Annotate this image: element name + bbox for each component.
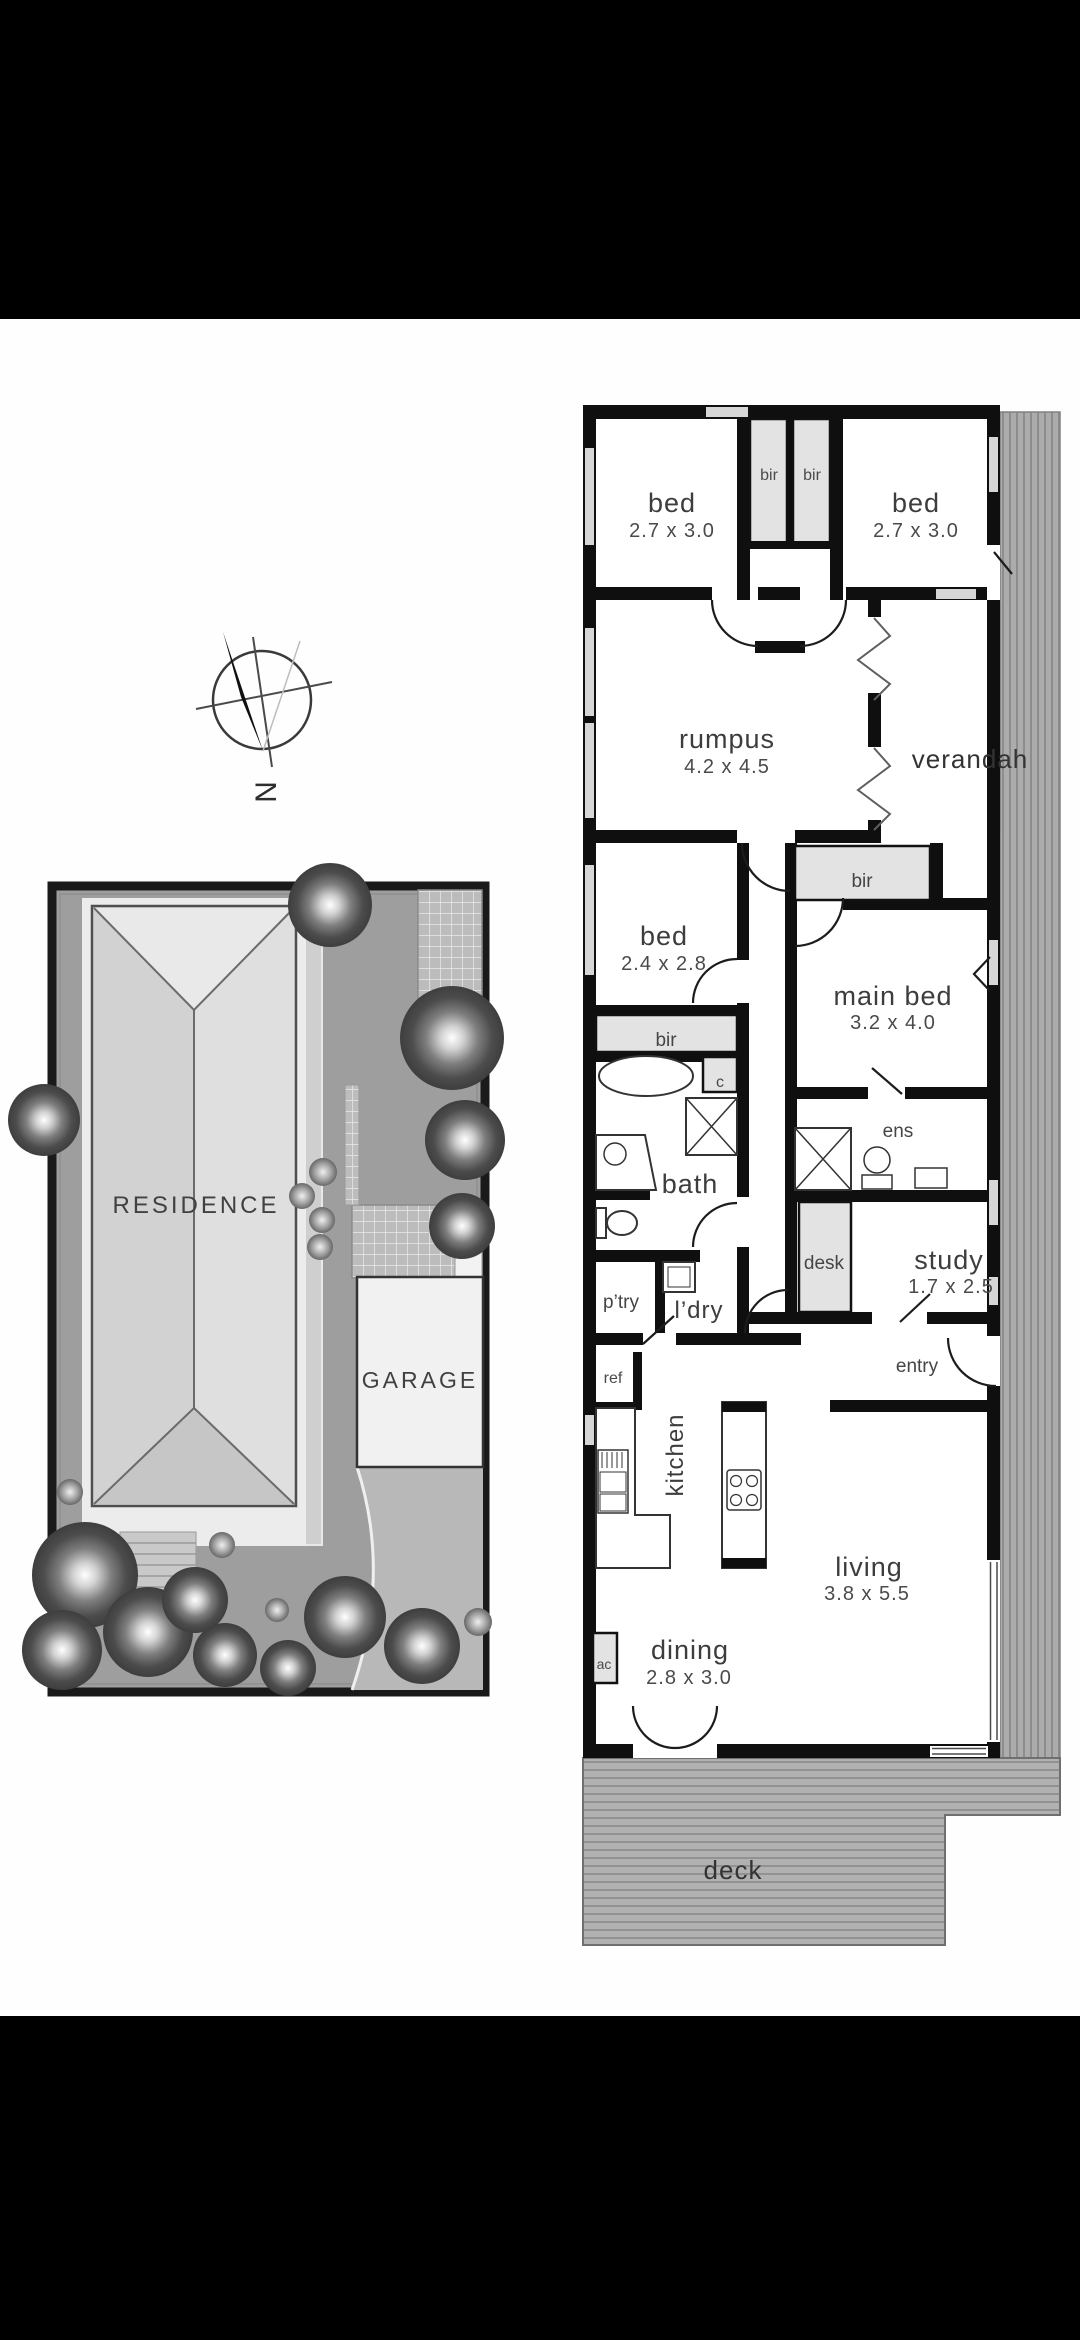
toilet-tank [596, 1208, 606, 1238]
bathtub [599, 1056, 693, 1096]
main-bed-dims: 3.2 x 4.0 [850, 1012, 936, 1034]
ens-basin [864, 1147, 890, 1173]
kitchen-label: kitchen [662, 1413, 689, 1496]
ref-label: ref [604, 1370, 623, 1387]
living-dims: 3.8 x 5.5 [824, 1583, 910, 1605]
bath-vanity [596, 1135, 656, 1190]
living-label: living [835, 1552, 903, 1582]
study-dims: 1.7 x 2.5 [908, 1276, 994, 1298]
garage-label: GARAGE [362, 1367, 478, 1393]
site-plan: RESIDENCE GARAGE [8, 863, 505, 1696]
entry-label: entry [896, 1356, 939, 1377]
ac-label: ac [597, 1656, 612, 1672]
north-label: N [250, 781, 283, 803]
bath-label: bath [662, 1169, 719, 1199]
study-label: study [914, 1245, 984, 1275]
bed2-label: bed [892, 488, 940, 518]
verandah-label: verandah [912, 744, 1028, 774]
toilet [607, 1211, 637, 1235]
laundry-label: l’dry [674, 1297, 723, 1324]
bir-top-left-label: bir [760, 467, 778, 484]
side-path [345, 1085, 359, 1205]
bottom-letterbox-bar [0, 2016, 1080, 2340]
verandah-strip [1000, 412, 1060, 1758]
residence-label: RESIDENCE [112, 1192, 279, 1219]
main-bed-label: main bed [833, 981, 952, 1011]
pantry-label: p’try [603, 1292, 639, 1313]
ens-label: ens [883, 1121, 914, 1142]
bed1-label: bed [648, 488, 696, 518]
bir-top-right-label: bir [803, 467, 821, 484]
dining-label: dining [651, 1635, 729, 1665]
bed3-dims: 2.4 x 2.8 [621, 953, 707, 975]
bed3-label: bed [640, 921, 688, 951]
plan-canvas: N RESIDENCE [0, 0, 1080, 2340]
ens-toilet [915, 1168, 947, 1188]
residence: RESIDENCE [92, 906, 296, 1506]
desk-label: desk [804, 1253, 845, 1274]
floor-plan: bed 2.7 x 3.0 bed 2.7 x 3.0 bir bir rump… [583, 405, 1060, 1945]
floorplan-screenshot: N RESIDENCE [0, 0, 1080, 2340]
rumpus-dims: 4.2 x 4.5 [684, 756, 770, 778]
dining-dims: 2.8 x 3.0 [646, 1667, 732, 1689]
bir-main-label: bir [851, 871, 873, 892]
closet-label: c [716, 1074, 724, 1091]
deck-label: deck [704, 1855, 763, 1885]
bir-bed3-label: bir [655, 1030, 677, 1051]
top-letterbox-bar [0, 0, 1080, 319]
bed1-dims: 2.7 x 3.0 [629, 520, 715, 542]
bed2-dims: 2.7 x 3.0 [873, 520, 959, 542]
rumpus-label: rumpus [679, 724, 775, 754]
